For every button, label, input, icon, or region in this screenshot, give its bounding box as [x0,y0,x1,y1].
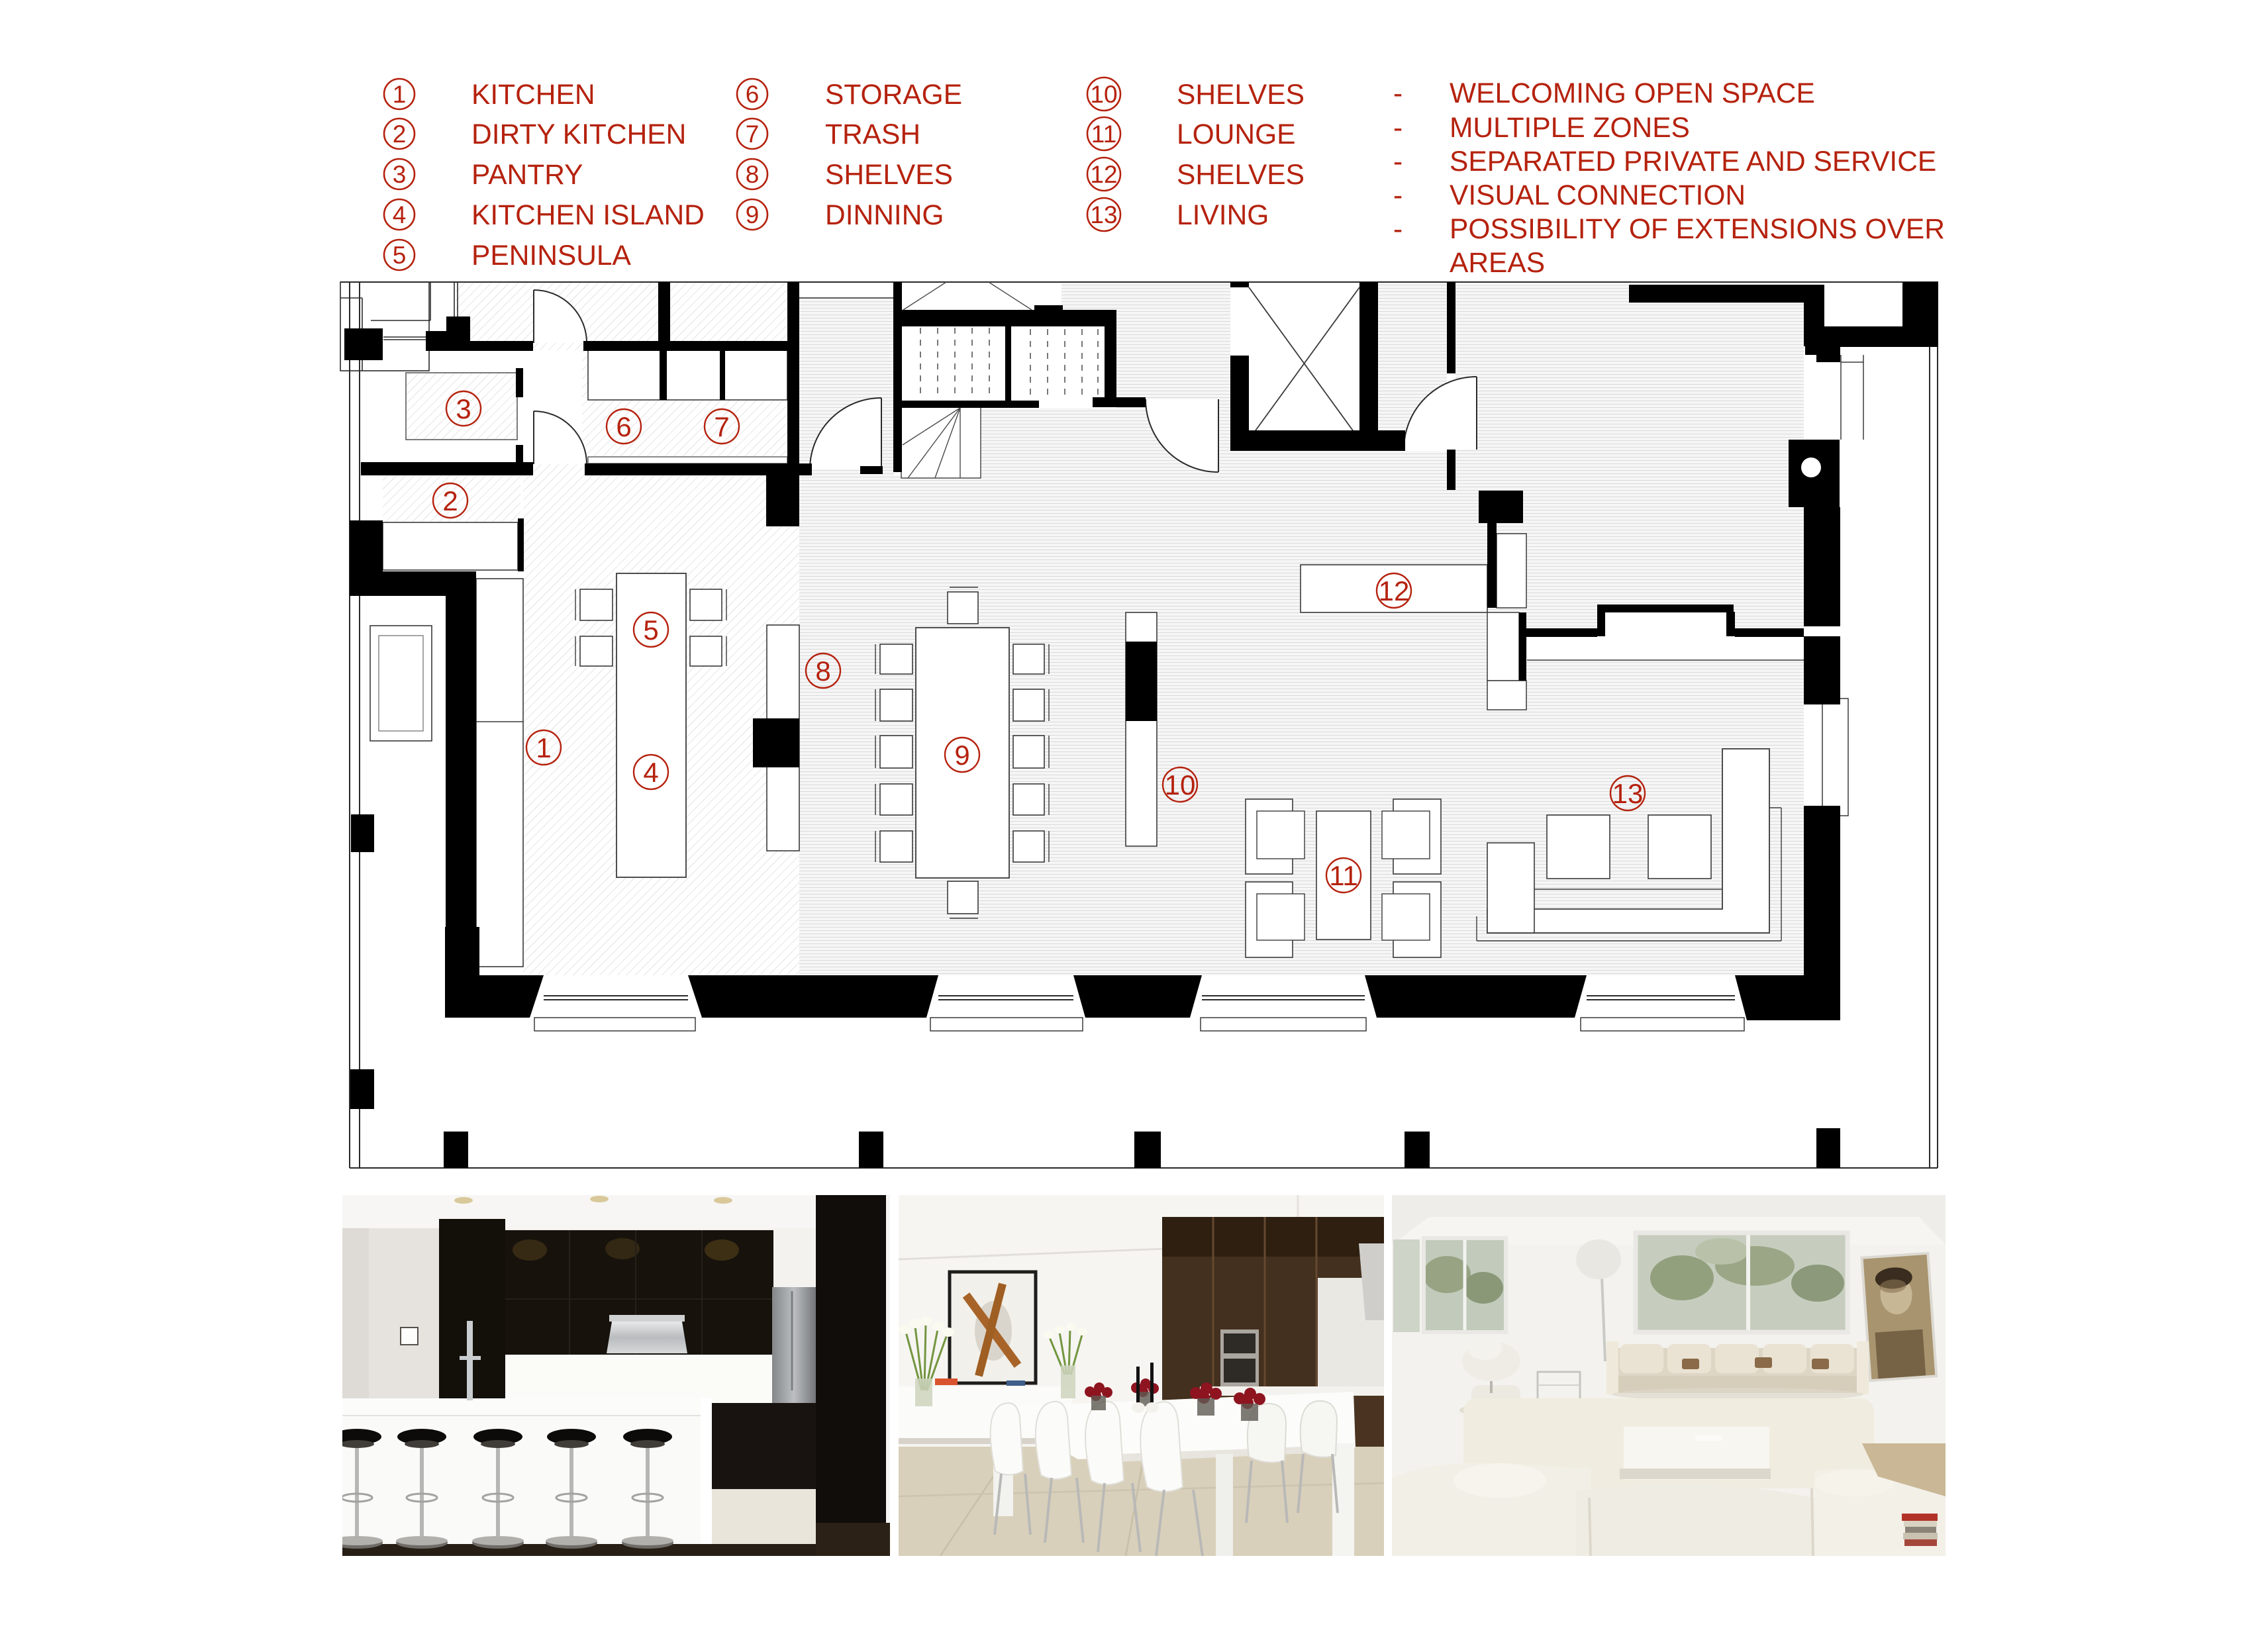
svg-text:POSSIBILITY OF EXTENSIONS OVER: POSSIBILITY OF EXTENSIONS OVER [1450,214,1945,245]
svg-text:5: 5 [393,242,407,269]
svg-text:MULTIPLE ZONES: MULTIPLE ZONES [1450,113,1690,144]
svg-text:-: - [1393,214,1403,245]
svg-text:SEPARATED PRIVATE AND SERVICE: SEPARATED PRIVATE AND SERVICE [1450,146,1936,177]
svg-text:LIVING: LIVING [1177,200,1269,231]
svg-text:11: 11 [1091,121,1116,148]
svg-text:2: 2 [393,121,407,148]
svg-text:11: 11 [1329,860,1358,891]
svg-text:-: - [1393,146,1403,177]
svg-text:9: 9 [954,740,969,771]
svg-text:10: 10 [1165,769,1196,800]
svg-text:13: 13 [1612,778,1644,809]
svg-text:4: 4 [643,757,658,788]
svg-text:LOUNGE: LOUNGE [1177,119,1295,150]
svg-text:PENINSULA: PENINSULA [471,240,632,271]
svg-text:8: 8 [746,161,760,188]
svg-text:6: 6 [616,411,631,442]
svg-text:9: 9 [746,201,760,228]
svg-text:5: 5 [643,614,658,646]
svg-text:12: 12 [1090,161,1117,188]
svg-text:-: - [1393,113,1403,144]
svg-text:SHELVES: SHELVES [1177,160,1305,191]
svg-text:SHELVES: SHELVES [825,160,953,191]
svg-text:2: 2 [442,485,458,516]
svg-text:3: 3 [456,393,471,424]
svg-text:KITCHEN: KITCHEN [471,79,595,111]
svg-text:13: 13 [1090,201,1117,228]
svg-text:AREAS: AREAS [1450,248,1545,279]
svg-text:10: 10 [1090,81,1117,108]
svg-text:4: 4 [393,201,407,228]
svg-text:PANTRY: PANTRY [471,160,583,191]
svg-text:TRASH: TRASH [825,119,920,150]
svg-text:7: 7 [714,411,729,442]
svg-text:-: - [1393,78,1403,109]
svg-text:8: 8 [815,655,830,687]
svg-text:SHELVES: SHELVES [1177,79,1305,111]
svg-text:3: 3 [393,161,407,188]
svg-text:1: 1 [536,732,551,763]
svg-text:STORAGE: STORAGE [825,79,962,111]
svg-text:12: 12 [1379,575,1410,606]
svg-text:6: 6 [746,81,760,108]
svg-text:VISUAL CONNECTION: VISUAL CONNECTION [1450,180,1746,211]
svg-text:WELCOMING OPEN SPACE: WELCOMING OPEN SPACE [1450,78,1815,109]
svg-text:7: 7 [746,121,760,148]
svg-text:DIRTY KITCHEN: DIRTY KITCHEN [471,119,686,150]
svg-text:-: - [1393,180,1403,211]
svg-text:KITCHEN ISLAND: KITCHEN ISLAND [471,200,705,231]
svg-text:DINNING: DINNING [825,200,944,231]
svg-text:1: 1 [393,81,407,108]
